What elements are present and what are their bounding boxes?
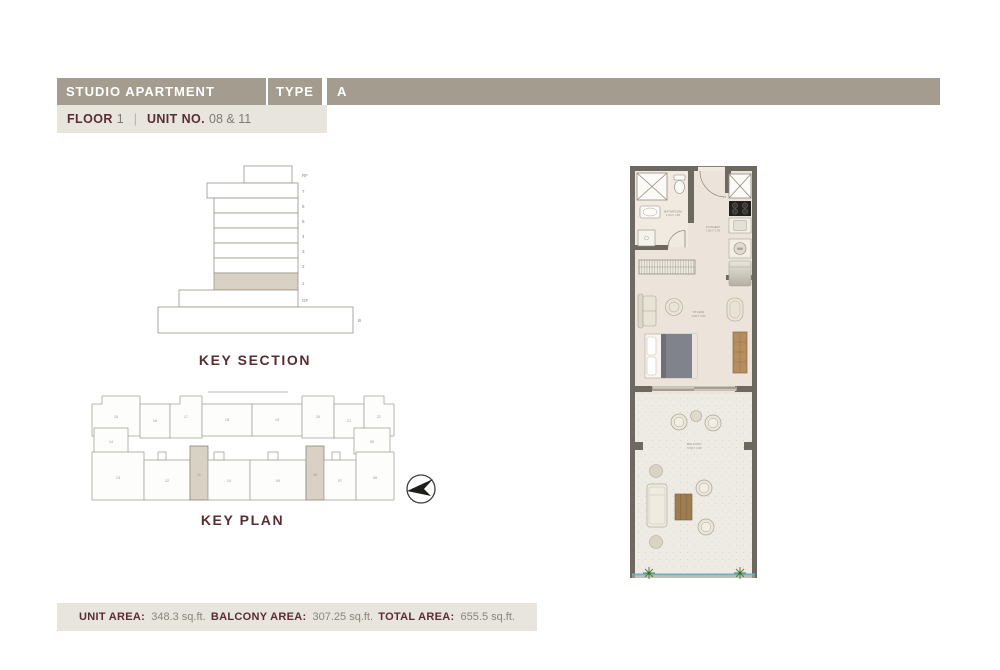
bathroom-dims: 2.1M X 1.9M	[666, 214, 680, 217]
toilet-icon	[675, 181, 685, 194]
washing-machine-label: WM	[737, 247, 743, 251]
floorplan-page: STUDIO APARTMENT TYPE A FLOOR 1 | UNIT N…	[0, 0, 1000, 670]
balcony-door-wall-left	[635, 386, 652, 392]
floor-label-gf: GF	[302, 298, 309, 303]
kitchen-dims: 1.8M X 3.7M	[706, 230, 720, 233]
key-section-diagram: RF 7 6 5 4 3 2 1 GF B	[150, 163, 370, 343]
key-plan-diagram: 15 16 17 18 19 20 21 22 14 05 13 12 11 1…	[88, 390, 398, 508]
subheader-divider: |	[134, 112, 137, 126]
area-summary-bar: UNIT AREA: 348.3 sq.ft. BALCONY AREA: 30…	[57, 603, 537, 631]
floor-label-5: 5	[302, 219, 305, 224]
floor-1-highlight	[214, 273, 298, 290]
kitchen-sink-icon	[734, 221, 747, 231]
unit-area-label: UNIT AREA:	[79, 611, 145, 623]
pillow	[647, 337, 656, 355]
key-section-floor-labels: RF 7 6 5 4 3 2 1 GF B	[302, 173, 361, 323]
entrance-opening	[698, 167, 726, 171]
floor-7	[207, 183, 298, 198]
tv-console	[733, 332, 747, 373]
page-title: STUDIO APARTMENT	[57, 78, 266, 105]
bathroom-label: BATHROOM	[664, 210, 682, 214]
unit-num: 22	[377, 415, 381, 419]
unit-num: 17	[184, 415, 188, 419]
unit-area: UNIT AREA: 348.3 sq.ft.	[79, 611, 206, 623]
planter-pot	[650, 465, 663, 478]
floor-label-b: B	[358, 318, 361, 323]
floor-label-rf: RF	[302, 173, 308, 178]
total-area-value: 655.5 sq.ft.	[461, 611, 515, 623]
wall-left	[630, 166, 635, 578]
balcony-area: BALCONY AREA: 307.25 sq.ft.	[211, 611, 373, 623]
wall-right	[752, 166, 757, 578]
unit-num: 20	[316, 415, 320, 419]
coffee-table	[675, 494, 692, 520]
armchair	[727, 298, 743, 321]
type-value: A	[327, 78, 940, 105]
north-arrow-icon	[402, 470, 440, 508]
floor-label-4: 4	[302, 234, 305, 239]
total-area: TOTAL AREA: 655.5 sq.ft.	[378, 611, 515, 623]
unit-num: 11	[197, 473, 201, 477]
basement-podium	[158, 307, 353, 333]
unit-num: 18	[225, 418, 229, 422]
building-section-outline	[158, 166, 353, 333]
ground-floor	[179, 290, 298, 307]
sliding-door-panel	[694, 389, 736, 390]
plan-notch-2	[268, 452, 278, 460]
unit-num: 05	[370, 440, 374, 444]
unit-num: 14	[109, 440, 113, 444]
unit-num: 10	[227, 479, 231, 483]
studio-dims: 4.6M X 3.6M	[691, 315, 705, 318]
balcony-side-table	[691, 411, 702, 422]
bed	[645, 334, 697, 378]
pillow	[647, 357, 656, 375]
floor-label-3: 3	[302, 249, 305, 254]
floor-3	[214, 243, 298, 258]
bed-foot-sheet	[692, 334, 697, 378]
lounger	[647, 484, 667, 527]
floor-value: 1	[117, 112, 124, 126]
balcony-dims: 9.5M X 3.0M	[687, 447, 701, 450]
floor-label-1: 1	[302, 281, 305, 286]
toilet-tank	[674, 175, 685, 180]
floor-6	[214, 198, 298, 213]
sliding-door-panel	[653, 387, 694, 388]
unit-num: 09	[276, 479, 280, 483]
key-plan-units	[92, 392, 394, 500]
unit-no-label: UNIT NO.	[147, 112, 205, 126]
floor-label: FLOOR	[67, 112, 113, 126]
balcony-area-label: BALCONY AREA:	[211, 611, 307, 623]
floor-label-7: 7	[302, 189, 305, 194]
balcony-stub-right	[744, 442, 752, 450]
stove-icon	[729, 201, 751, 216]
planter-pot	[650, 536, 663, 549]
plan-notch-3	[158, 452, 166, 460]
unit-area-value: 348.3 sq.ft.	[151, 611, 205, 623]
unit-num: 08	[313, 473, 317, 477]
sliding-door	[652, 387, 737, 392]
unit-floor-plan: BATHROOM 2.1M X 1.9M WM KITCHEN 1.8M X 3…	[630, 166, 757, 586]
type-label: TYPE	[268, 78, 322, 105]
balcony-label: BALCONY	[687, 442, 702, 446]
kitchen-fixtures: WM	[729, 174, 751, 286]
balcony-area-value: 307.25 sq.ft.	[313, 611, 374, 623]
floor-label-2: 2	[302, 264, 305, 269]
bed-blanket	[661, 334, 697, 378]
plan-notch-1	[214, 452, 224, 460]
unit-num: 13	[116, 476, 120, 480]
unit-num: 19	[275, 418, 279, 422]
plan-notch-4	[332, 452, 340, 460]
wardrobe	[639, 260, 695, 274]
floor-4	[214, 228, 298, 243]
round-table	[666, 299, 683, 316]
unit-num: 15	[114, 415, 118, 419]
unit-num: 21	[347, 419, 351, 423]
roof-floor	[244, 166, 292, 183]
header-bar: STUDIO APARTMENT TYPE A	[57, 78, 940, 105]
bathroom-side-wall	[688, 166, 694, 223]
floor-label-6: 6	[302, 204, 305, 209]
blanket-fold	[661, 334, 666, 378]
kitchen-shaft-icon	[729, 174, 751, 198]
unit-num: 12	[165, 479, 169, 483]
kitchen-label: KITCHEN	[706, 225, 720, 229]
balcony-stub-left	[635, 442, 643, 450]
key-plan-title: KEY PLAN	[140, 512, 345, 528]
unit-num: 06	[373, 476, 377, 480]
unit-num: 07	[338, 479, 342, 483]
fridge-icon	[729, 261, 751, 286]
studio-label: STUDIO	[693, 310, 705, 314]
unit-num: 16	[153, 419, 157, 423]
key-section-title: KEY SECTION	[150, 352, 360, 368]
total-area-label: TOTAL AREA:	[378, 611, 454, 623]
sofa-back	[638, 294, 643, 328]
floor-2	[214, 258, 298, 273]
balcony-door-wall-right	[735, 386, 752, 392]
shaft-icon	[637, 173, 667, 200]
unit-no-value: 08 & 11	[209, 112, 251, 126]
floor-5	[214, 213, 298, 228]
shower-tray-icon	[638, 230, 655, 246]
floor-unit-bar: FLOOR 1 | UNIT NO. 08 & 11	[57, 105, 327, 133]
